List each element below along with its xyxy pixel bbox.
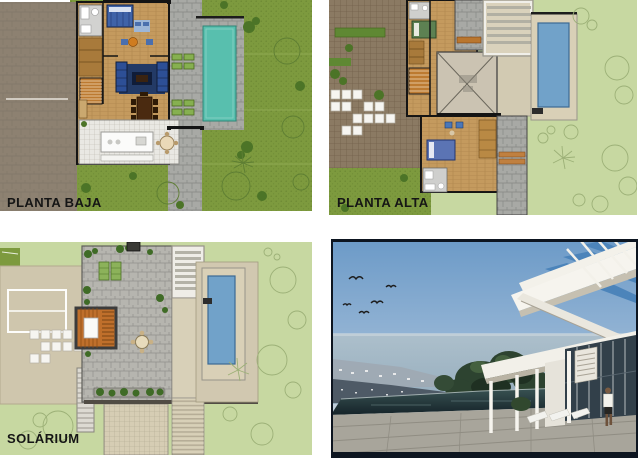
pool [196, 262, 258, 402]
pool [203, 26, 236, 121]
planta-alta-drawing [329, 0, 637, 215]
render-image [331, 239, 638, 458]
panel-solarium [0, 242, 312, 455]
pool [531, 12, 577, 120]
planta-baja-drawing [0, 0, 312, 211]
wooden-stair-box [76, 308, 116, 348]
driveway [0, 2, 77, 211]
panel-planta-baja [0, 0, 312, 211]
solarium-drawing [0, 242, 312, 455]
label-solarium: SOLÁRIUM [7, 431, 80, 446]
stone-path [497, 116, 527, 215]
panel-render [331, 239, 638, 458]
plan-sheet: PLANTA BAJA PLANTA ALTA SOLÁRIUM [0, 0, 640, 461]
label-planta-baja: PLANTA BAJA [7, 195, 102, 210]
label-planta-alta: PLANTA ALTA [337, 195, 429, 210]
panel-planta-alta [329, 0, 637, 215]
terrace-plant [511, 397, 531, 411]
